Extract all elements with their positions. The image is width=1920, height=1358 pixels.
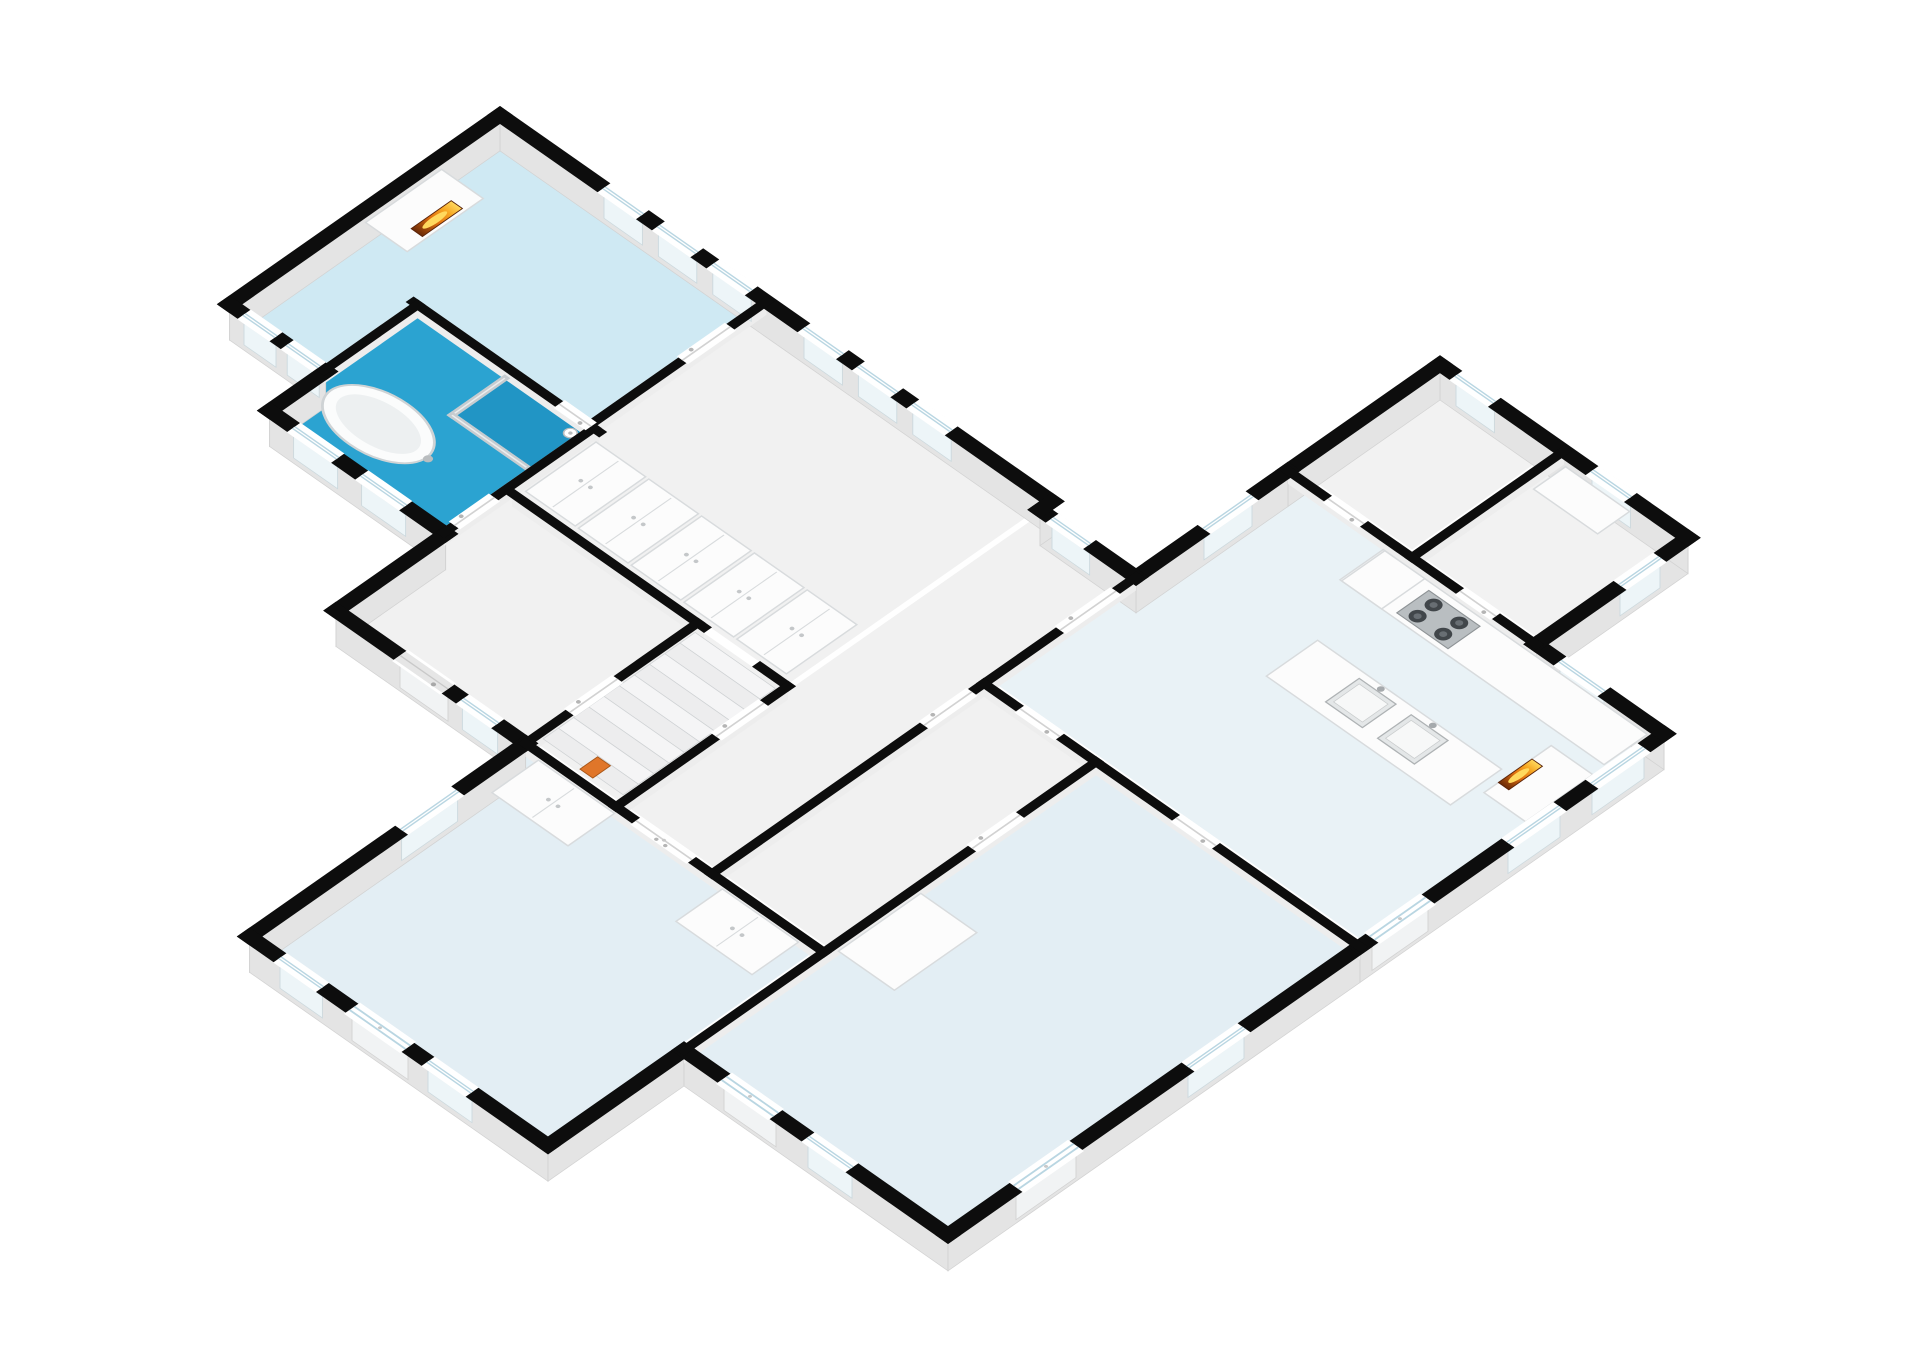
floor-plan-scene <box>0 0 1842 1358</box>
floor-plan-viewport <box>0 0 1920 1358</box>
wall-corridor-step <box>1040 501 1052 509</box>
floor-plan-3d <box>0 0 1920 1358</box>
